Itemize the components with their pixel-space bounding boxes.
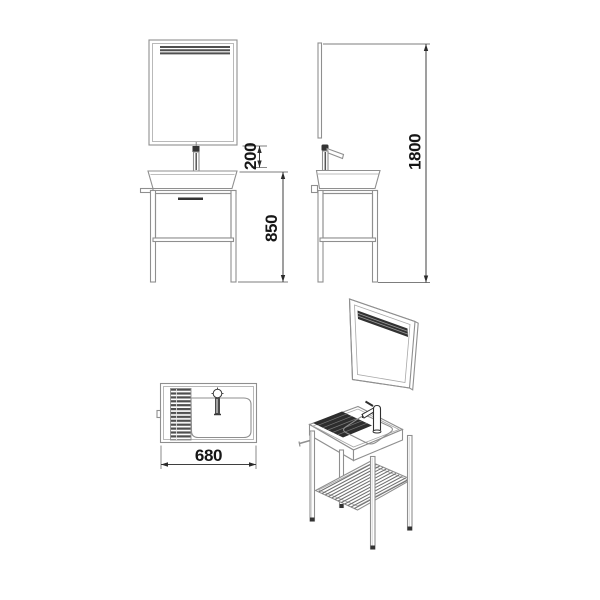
frame-detail-dash [178,198,203,201]
perspective-view [299,299,418,550]
dimension-850: 850 [238,172,288,282]
dimension-200: 200 [241,143,267,170]
dimension-680: 680 [161,446,256,470]
frame-side [318,191,378,283]
faucet-front [193,142,200,172]
technical-drawing-canvas: 200 850 [0,0,600,600]
top-view: 680 [157,384,257,470]
basin-plan [191,398,251,438]
leg-right [408,436,413,531]
side-view: 1800 [312,43,431,283]
towel-bar-3d [299,441,310,447]
dimension-label-1800: 1800 [406,134,425,170]
vanity-technical-drawing: 200 850 [0,0,600,600]
shelf-3d [316,462,412,511]
mirror-side [318,43,322,138]
mirror-front [149,40,237,145]
towel-bar-side [312,186,318,193]
frame-front [151,191,237,283]
dimension-label-850: 850 [262,215,281,242]
basin-side [317,171,381,189]
leg-front [371,457,376,550]
faucet-side [322,145,344,171]
dimension-label-200: 200 [241,143,260,170]
towel-bar-plan [157,411,161,418]
drainer-ribs [171,389,192,441]
faucet-plan [212,388,224,415]
dimension-label-680: 680 [195,446,222,465]
basin-front [148,171,237,189]
led-light-bars [160,47,230,53]
leg-left [310,431,315,521]
front-view: 200 850 [141,40,289,282]
mirror-3d [350,299,419,390]
